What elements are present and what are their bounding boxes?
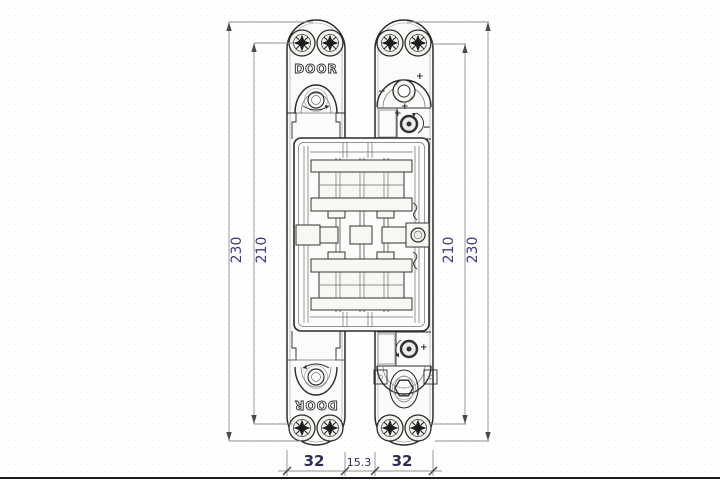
dim-label-32-right: 32 <box>392 452 413 470</box>
page-bottom-rule <box>0 477 720 479</box>
dim-label-32-left: 32 <box>304 452 325 470</box>
dimension-bottom-row: 32 15.3 32 <box>278 450 442 476</box>
dimension-right-inner: 210 <box>429 44 468 424</box>
hinge-body <box>294 138 429 331</box>
dim-label-230-left: 230 <box>229 237 245 264</box>
screw-icon <box>317 30 343 56</box>
door-label-bottom: DOOR <box>294 398 338 412</box>
dim-label-210-left: 210 <box>254 237 270 264</box>
hinge-body-pivot-row <box>296 223 429 247</box>
minus-mark: − <box>378 87 386 97</box>
minus-mark: − <box>423 123 431 133</box>
screw-icon <box>405 30 431 56</box>
dim-label-210-right: 210 <box>441 237 457 264</box>
door-label-top: DOOR <box>294 62 338 76</box>
plus-mark: + <box>416 72 424 82</box>
screw-icon <box>377 415 403 441</box>
hinge-technical-drawing: DOOR DOOR <box>0 0 720 480</box>
dim-label-15-3: 15.3 <box>347 456 372 469</box>
dim-label-230-right: 230 <box>465 237 481 264</box>
plus-mark: + <box>394 109 402 119</box>
plus-mark: + <box>401 102 409 112</box>
screw-icon <box>289 415 315 441</box>
screw-icon <box>317 415 343 441</box>
screw-icon <box>405 415 431 441</box>
screw-icon <box>377 30 403 56</box>
drawing-page: DOOR DOOR <box>0 0 720 480</box>
plus-mark: + <box>420 343 428 353</box>
